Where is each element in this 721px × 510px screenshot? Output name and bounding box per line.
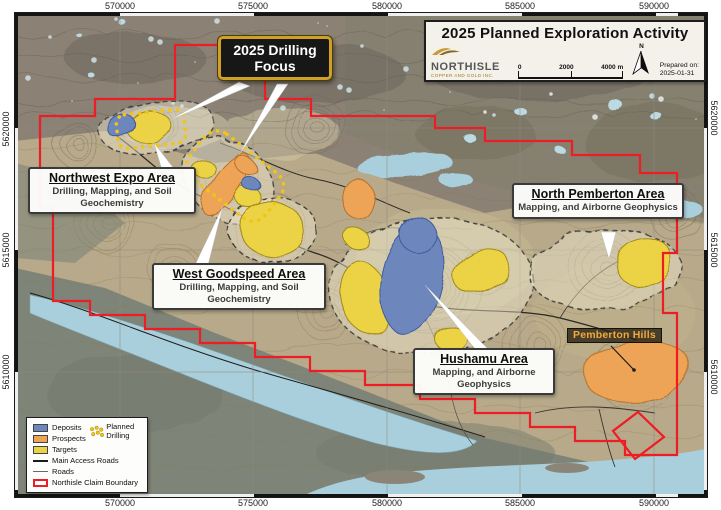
- legend-label: Roads: [52, 467, 74, 476]
- legend-label: Main Access Roads: [52, 456, 119, 465]
- callout-northwest-expo: Northwest Expo Area Drilling, Mapping, a…: [28, 167, 196, 214]
- area-name: Hushamu Area: [419, 352, 549, 366]
- prepared-on: Prepared on: 2025-01-31: [660, 62, 699, 79]
- coordinate-label: 5615000: [709, 223, 719, 277]
- snow-lake-speck: [48, 35, 52, 39]
- legend-item-roads: Roads: [33, 466, 143, 477]
- company-subtitle: COPPER AND GOLD INC.: [431, 74, 512, 79]
- map-frame-left: [15, 13, 18, 497]
- snow-lake-speck: [114, 17, 118, 21]
- snow-lake-speck: [326, 25, 328, 27]
- coordinate-label: 580000: [360, 498, 414, 508]
- area-name: North Pemberton Area: [518, 187, 678, 201]
- coordinate-label: 5610000: [709, 350, 719, 404]
- prepared-date: 2025-01-31: [660, 70, 699, 78]
- snow-lake-speck: [449, 91, 451, 93]
- coordinate-label: 575000: [226, 498, 280, 508]
- snow-lake-speck: [194, 61, 196, 63]
- snow-lake-speck: [71, 100, 73, 102]
- snow-lake-speck: [695, 118, 697, 120]
- drilling-focus-callout: 2025 Drilling Focus: [218, 36, 332, 80]
- area-activities: Mapping, and Airborne Geophysics: [518, 202, 678, 213]
- claim-boundary-swatch-icon: [33, 479, 48, 487]
- drilling-focus-label: 2025 Drilling Focus: [225, 42, 325, 74]
- legend-item-claim-boundary: Northisle Claim Boundary: [33, 477, 143, 488]
- planned-drilling-dots-icon: [89, 424, 104, 439]
- legend-item-targets: Targets: [33, 444, 143, 455]
- snow-lake-speck: [403, 66, 409, 72]
- coordinate-label: 585000: [493, 498, 547, 508]
- coordinate-label: 590000: [627, 1, 681, 11]
- snow-lake-speck: [337, 84, 343, 90]
- scale-tick-label: 2000: [559, 64, 573, 71]
- coordinate-label: 570000: [93, 498, 147, 508]
- coordinate-label: 5620000: [1, 102, 11, 156]
- snow-lake-speck: [383, 109, 385, 111]
- scale-tick-label: 0: [518, 64, 522, 71]
- coordinate-label: 580000: [360, 1, 414, 11]
- snow-lake-speck: [658, 96, 664, 102]
- snow-lake-speck: [317, 22, 319, 24]
- snow-lake-speck: [214, 18, 220, 24]
- snow-lake-speck: [148, 36, 154, 42]
- map-title: 2025 Planned Exploration Activity: [426, 25, 704, 42]
- snow-lake-speck: [492, 113, 496, 117]
- coordinate-label: 5620000: [709, 91, 719, 145]
- area-activities: Mapping, and Airborne Geophysics: [419, 367, 549, 390]
- area-activities: Drilling, Mapping, and Soil Geochemistry: [158, 282, 320, 305]
- map-frame-bottom: [15, 494, 707, 497]
- callout-north-pemberton: North Pemberton Area Mapping, and Airbor…: [512, 183, 684, 219]
- snow-lake-speck: [592, 114, 598, 120]
- scale-bar: 0 2000 4000 m: [518, 64, 623, 79]
- map-canvas: 2025 Drilling Focus Northwest Expo Area …: [14, 12, 708, 498]
- snow-lake-speck: [549, 92, 553, 96]
- deposits-swatch-icon: [33, 424, 48, 432]
- road-line-icon: [33, 471, 48, 472]
- area-name: Northwest Expo Area: [34, 171, 190, 185]
- prospects-swatch-icon: [33, 435, 48, 443]
- callout-hushamu: Hushamu Area Mapping, and Airborne Geoph…: [413, 348, 555, 395]
- coordinate-label: 5610000: [1, 345, 11, 399]
- main-road-line-icon: [33, 460, 48, 462]
- snow-lake-speck: [483, 110, 487, 114]
- coordinate-label: 585000: [493, 1, 547, 11]
- targets-swatch-icon: [33, 446, 48, 454]
- snow-lake-speck: [346, 87, 352, 93]
- coordinate-label: 5615000: [1, 223, 11, 277]
- north-arrow-icon: [631, 51, 651, 75]
- map-frame-right: [704, 13, 707, 497]
- area-activities: Drilling, Mapping, and Soil Geochemistry: [34, 186, 190, 209]
- map-frame-top: [15, 13, 707, 16]
- coordinate-label: 570000: [93, 1, 147, 11]
- legend-label: Targets: [52, 445, 77, 454]
- snow-lake-speck: [157, 39, 163, 45]
- north-arrow: N: [629, 44, 653, 79]
- coordinate-label: 575000: [226, 1, 280, 11]
- company-name: NORTHISLE: [431, 62, 512, 73]
- legend-label: Prospects: [52, 434, 86, 443]
- legend-planned-drilling: Planned Drilling: [89, 423, 147, 440]
- snow-lake-speck: [25, 75, 31, 81]
- company-logo: NORTHISLE COPPER AND GOLD INC.: [431, 46, 512, 79]
- area-name: West Goodspeed Area: [158, 267, 320, 281]
- prepared-label: Prepared on:: [660, 62, 699, 70]
- snow-lake-speck: [91, 57, 97, 63]
- snow-lake-speck: [360, 44, 364, 48]
- scale-tick-label: 4000 m: [601, 64, 623, 71]
- exploration-map-page: 570000 575000 580000 585000 590000 57000…: [0, 0, 721, 510]
- map-title-box: 2025 Planned Exploration Activity NORTHI…: [424, 20, 706, 82]
- place-label-pemberton-hills: Pemberton Hills: [567, 328, 662, 343]
- coordinate-label: 590000: [627, 498, 681, 508]
- logo-bird-icon: [431, 46, 461, 58]
- snow-lake-speck: [137, 82, 139, 84]
- legend-label: Deposits: [52, 423, 82, 432]
- map-legend: Planned Drilling Deposits Prospects Targ…: [26, 417, 148, 493]
- callout-west-goodspeed: West Goodspeed Area Drilling, Mapping, a…: [152, 263, 326, 310]
- legend-label: Northisle Claim Boundary: [52, 478, 138, 487]
- snow-lake-speck: [280, 105, 286, 111]
- legend-item-main-access-roads: Main Access Roads: [33, 455, 143, 466]
- legend-label: Planned Drilling: [106, 423, 147, 440]
